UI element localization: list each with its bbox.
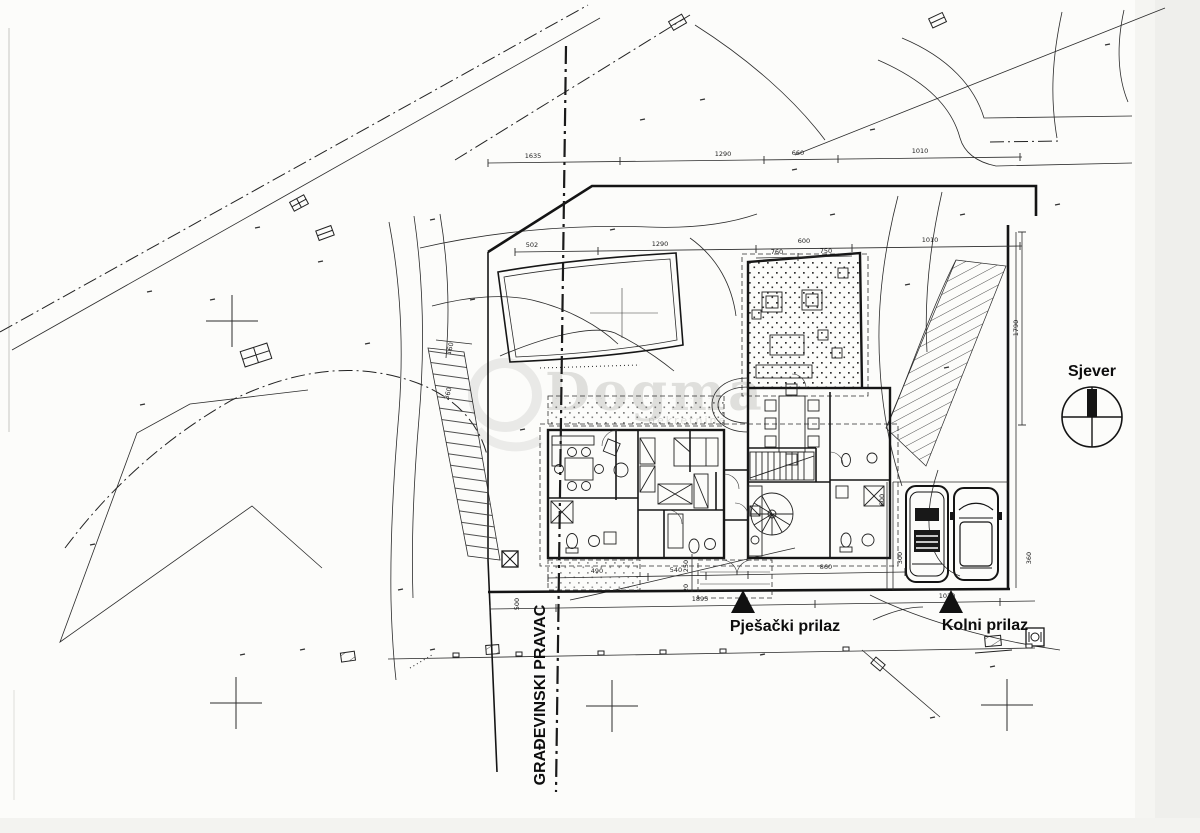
svg-text:600: 600 — [798, 237, 810, 245]
svg-text:660: 660 — [792, 149, 804, 157]
svg-text:1290: 1290 — [652, 240, 669, 248]
svg-text:860: 860 — [820, 563, 832, 571]
svg-text:360: 360 — [1025, 552, 1033, 564]
svg-text:600: 600 — [878, 494, 886, 506]
svg-text:750: 750 — [820, 247, 832, 255]
vehicle-access-label: Kolni prilaz — [942, 617, 1028, 634]
svg-text:502: 502 — [526, 241, 538, 249]
svg-text:300: 300 — [896, 552, 904, 564]
svg-text:1010: 1010 — [922, 236, 939, 244]
site-plan-sheet: Dogma nekretnine — [0, 0, 1200, 833]
svg-text:20: 20 — [682, 584, 690, 592]
svg-text:1635: 1635 — [525, 152, 542, 160]
svg-text:1290: 1290 — [715, 150, 732, 158]
north-needle — [1087, 389, 1097, 417]
pedestrian-access-label: Pješački prilaz — [730, 618, 840, 635]
svg-text:1895: 1895 — [692, 595, 709, 603]
svg-text:500: 500 — [513, 598, 521, 610]
svg-text:540: 540 — [670, 566, 682, 574]
svg-text:250: 250 — [682, 560, 690, 572]
site-plan-drawing: Dogma nekretnine — [0, 0, 1200, 833]
svg-text:1790: 1790 — [1012, 320, 1020, 337]
svg-text:490: 490 — [591, 567, 603, 575]
north-label: Sjever — [1068, 363, 1116, 380]
terrace — [742, 253, 868, 396]
svg-text:760: 760 — [771, 248, 783, 256]
building-line-label: GRAĐEVINSKI PRAVAC — [532, 604, 549, 785]
svg-text:1010: 1010 — [912, 147, 929, 155]
